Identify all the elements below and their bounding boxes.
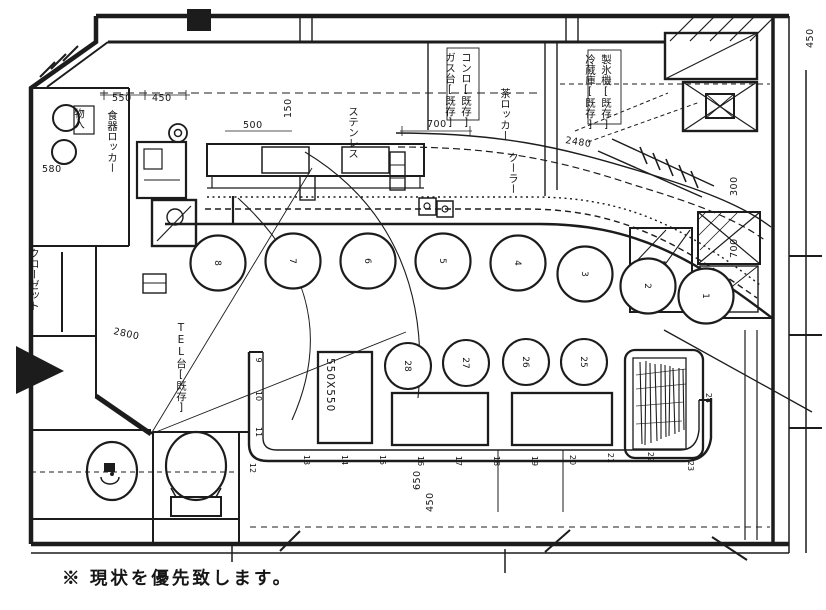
stairs-stringers <box>598 139 714 197</box>
plan-label: 茶ロッカー <box>499 87 511 140</box>
stool-number: 25 <box>578 356 588 367</box>
stool-number: 7 <box>287 258 297 264</box>
right-inner-walls <box>745 330 757 540</box>
seat-number: 10 <box>254 391 263 401</box>
stool-number: 2 <box>642 283 652 289</box>
counter-stools: 87654321 <box>191 234 734 324</box>
stool-number: 4 <box>512 260 522 266</box>
sink-bowl-2 <box>52 140 76 164</box>
plan-label: ステンレス <box>347 106 359 159</box>
wc-area <box>31 430 248 544</box>
top-right-corner-hatch <box>670 16 775 41</box>
seat-number: 22 <box>646 452 655 462</box>
plan-label: 製氷機[既存] <box>600 53 612 130</box>
plan-label: 物入 <box>73 107 85 129</box>
plan-label: 食器ロッカー <box>106 109 118 173</box>
gas-burner-center <box>175 130 182 137</box>
stool-number: 28 <box>402 360 412 372</box>
seat-number: 9 <box>254 357 263 362</box>
stool-number: 5 <box>437 258 447 264</box>
seat-number: 11 <box>254 427 263 437</box>
dimension-label: 300 <box>729 176 740 196</box>
plan-label: クローゼット <box>28 248 40 311</box>
caption-note: ※ 現状を優先致します。 <box>62 568 293 588</box>
dimension-label: 550 <box>112 93 132 104</box>
dimension-label: 2800 <box>112 326 140 342</box>
service-gap-box-1 <box>419 198 436 215</box>
entry-thick-diagonal <box>96 396 151 434</box>
stool-number: 26 <box>520 356 530 368</box>
gas-burner-icon <box>169 124 187 142</box>
stool-number: 3 <box>579 271 589 277</box>
dimension-label: 500 <box>243 120 263 131</box>
plan-label: 550X550 <box>324 358 336 412</box>
counter-sink-1 <box>262 147 309 173</box>
seat-number: 21 <box>606 453 615 463</box>
dimension-label: 650 <box>412 470 423 490</box>
dimension-label: 450 <box>805 28 816 48</box>
dimension-label: 700 <box>729 238 740 258</box>
table-mid-1 <box>392 393 488 445</box>
dimension-label: 450 <box>425 492 436 512</box>
washbasin-drain <box>110 472 114 476</box>
shaft-boxes <box>665 33 757 131</box>
seat-number: 19 <box>530 456 539 466</box>
floor-plan: 87654321 28272625 9101112131415161718192… <box>0 0 826 610</box>
plan-label: コンロ[既存] <box>460 52 472 129</box>
seat-number: 13 <box>302 455 311 465</box>
plan-label: ガス台[既存] <box>444 52 456 129</box>
entry-area <box>16 152 420 434</box>
floor-stools: 28272625 <box>385 339 607 389</box>
toilet-bowl <box>166 432 226 500</box>
stove-inner <box>144 149 162 169</box>
stool-number: 27 <box>460 357 470 368</box>
top-wall-studs <box>300 16 578 42</box>
seat-number: 12 <box>248 463 257 473</box>
right-outer-lines <box>789 16 806 553</box>
plan-label: 冷蔵庫[既存] <box>584 53 596 130</box>
seat-number: 15 <box>378 455 387 465</box>
wc-walls <box>31 430 248 544</box>
back-counter <box>207 144 424 176</box>
wall-blob <box>187 9 211 31</box>
paper-holder-arc <box>101 477 119 484</box>
seat-number: 24 <box>704 393 713 403</box>
dimension-label: 150 <box>283 98 294 118</box>
seat-number: 17 <box>454 456 463 466</box>
stool-number: 8 <box>212 260 222 266</box>
stool-number: 1 <box>700 293 710 299</box>
seat-number: 20 <box>568 455 577 465</box>
plan-label: クーラー <box>507 152 519 194</box>
table-mid-2 <box>512 393 612 445</box>
entrance-arrow <box>16 346 64 394</box>
service-gap-dot-1 <box>424 203 430 209</box>
seat-number: 16 <box>416 456 425 466</box>
paper-holder <box>104 463 115 472</box>
seat-number: 18 <box>492 456 501 466</box>
seat-number: 14 <box>340 455 349 465</box>
plan-label: TEL台[既存] <box>175 322 187 414</box>
dimension-label: 580 <box>42 164 62 175</box>
scanned-floor-plan-page: 87654321 28272625 9101112131415161718192… <box>0 0 826 610</box>
counter-divider-box <box>390 152 405 190</box>
dimension-label: 2480 <box>565 135 593 150</box>
shaft-small-box-x <box>706 94 734 118</box>
dimension-label: 450 <box>152 93 172 104</box>
seat-number: 23 <box>686 461 695 471</box>
stool-number: 6 <box>362 258 372 264</box>
